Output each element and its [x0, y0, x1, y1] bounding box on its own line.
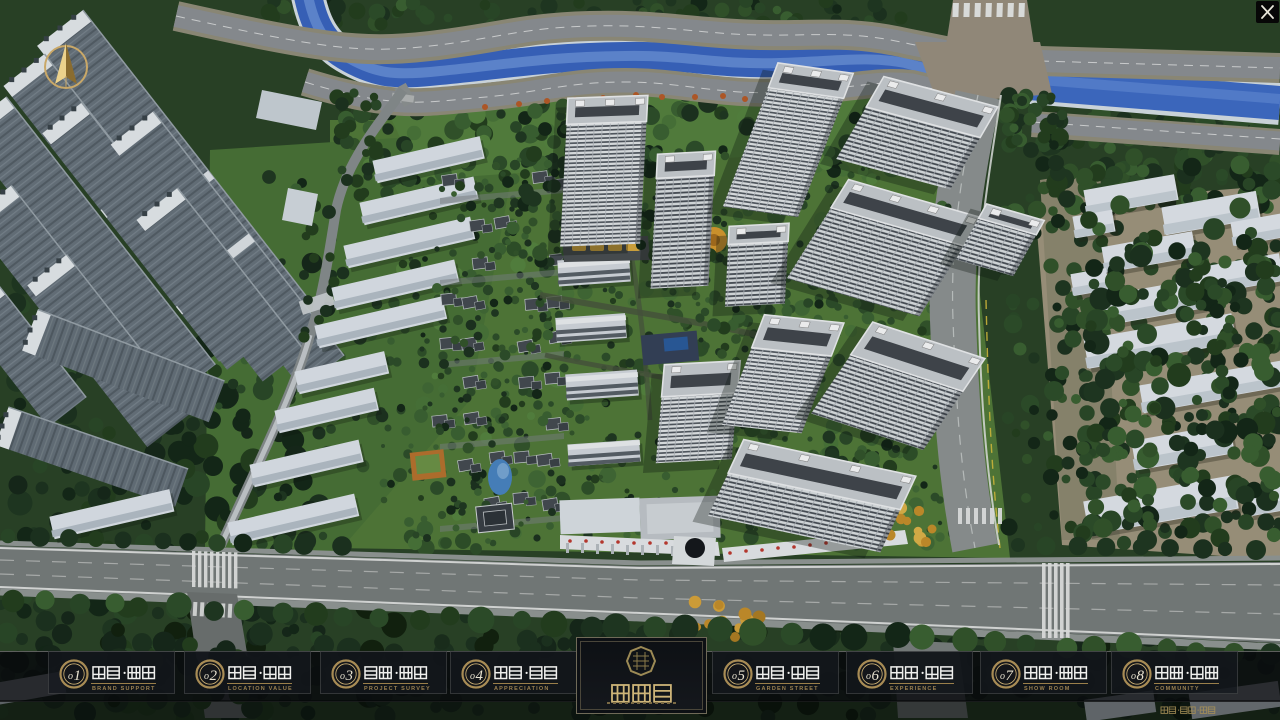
svg-text:o: o: [866, 671, 871, 682]
svg-text:o: o: [68, 671, 73, 682]
svg-text:4: 4: [476, 668, 484, 684]
svg-text:1: 1: [74, 668, 82, 684]
svg-text:o: o: [470, 671, 475, 682]
svg-text:o: o: [1000, 671, 1005, 682]
svg-text:o: o: [1131, 671, 1136, 682]
svg-text:6: 6: [872, 668, 880, 684]
svg-text:5: 5: [738, 668, 746, 684]
svg-text:o: o: [732, 671, 737, 682]
svg-text:3: 3: [345, 668, 354, 684]
svg-text:o: o: [340, 671, 345, 682]
svg-text:2: 2: [210, 668, 218, 684]
svg-text:o: o: [204, 671, 209, 682]
svg-text:8: 8: [1137, 668, 1145, 684]
